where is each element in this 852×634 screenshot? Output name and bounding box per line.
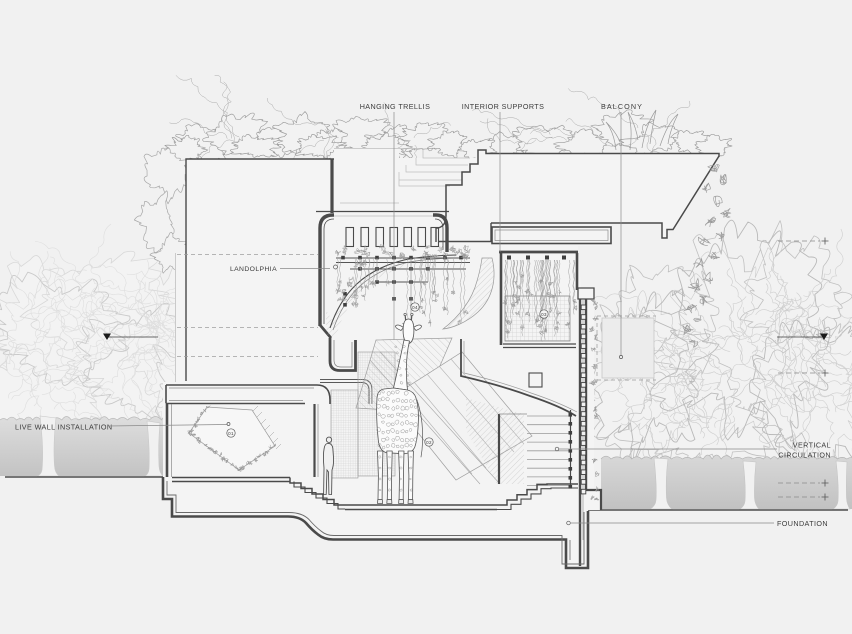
svg-text:04: 04 — [412, 305, 418, 310]
svg-text:LANDOLPHIA: LANDOLPHIA — [230, 266, 277, 273]
svg-text:VERTICAL: VERTICAL — [793, 441, 831, 450]
svg-text:FOUNDATION: FOUNDATION — [777, 519, 828, 528]
svg-text:01: 01 — [228, 431, 234, 436]
svg-text:INTERIOR SUPPORTS: INTERIOR SUPPORTS — [462, 102, 545, 111]
svg-text:BALCONY: BALCONY — [601, 102, 643, 111]
svg-text:03: 03 — [541, 312, 547, 317]
svg-text:HANGING TRELLIS: HANGING TRELLIS — [360, 102, 431, 111]
svg-text:02: 02 — [426, 440, 432, 445]
svg-text:CIRCULATION: CIRCULATION — [778, 451, 831, 460]
svg-text:LIVE WALL INSTALLATION: LIVE WALL INSTALLATION — [15, 423, 112, 432]
